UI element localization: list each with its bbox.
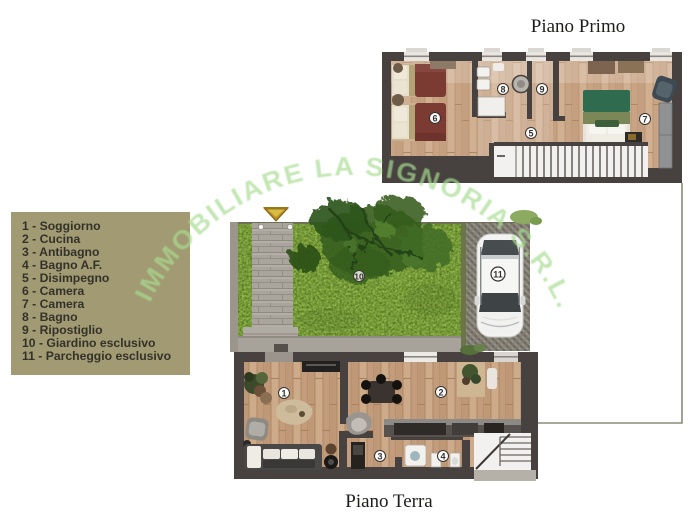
svg-text:7 - Camera: 7 - Camera: [22, 297, 85, 311]
svg-text:8: 8: [500, 84, 505, 94]
svg-text:4: 4: [440, 451, 445, 461]
svg-text:6: 6: [432, 113, 437, 123]
svg-text:2: 2: [438, 387, 443, 397]
svg-text:4 - Bagno A.F.: 4 - Bagno A.F.: [22, 258, 102, 272]
svg-text:9: 9: [539, 84, 544, 94]
svg-text:5 - Disimpegno: 5 - Disimpegno: [22, 271, 109, 285]
svg-text:3: 3: [377, 451, 382, 461]
svg-text:1: 1: [281, 388, 286, 398]
svg-text:2 - Cucina: 2 - Cucina: [22, 232, 80, 246]
svg-text:8 - Bagno: 8 - Bagno: [22, 310, 78, 324]
svg-text:6 - Camera: 6 - Camera: [22, 284, 85, 298]
svg-text:9 - Ripostiglio: 9 - Ripostiglio: [22, 323, 103, 337]
svg-text:11 - Parcheggio esclusivo: 11 - Parcheggio esclusivo: [22, 349, 171, 363]
svg-text:11: 11: [493, 270, 503, 280]
svg-text:Piano Terra: Piano Terra: [345, 491, 433, 512]
svg-text:10 - Giardino esclusivo: 10 - Giardino esclusivo: [22, 336, 155, 350]
svg-text:5: 5: [528, 128, 533, 138]
svg-text:1 - Soggiorno: 1 - Soggiorno: [22, 219, 101, 233]
svg-text:7: 7: [642, 114, 647, 124]
svg-text:Piano Primo: Piano Primo: [531, 16, 625, 37]
svg-text:3 - Antibagno: 3 - Antibagno: [22, 245, 99, 259]
svg-text:10: 10: [354, 271, 364, 281]
